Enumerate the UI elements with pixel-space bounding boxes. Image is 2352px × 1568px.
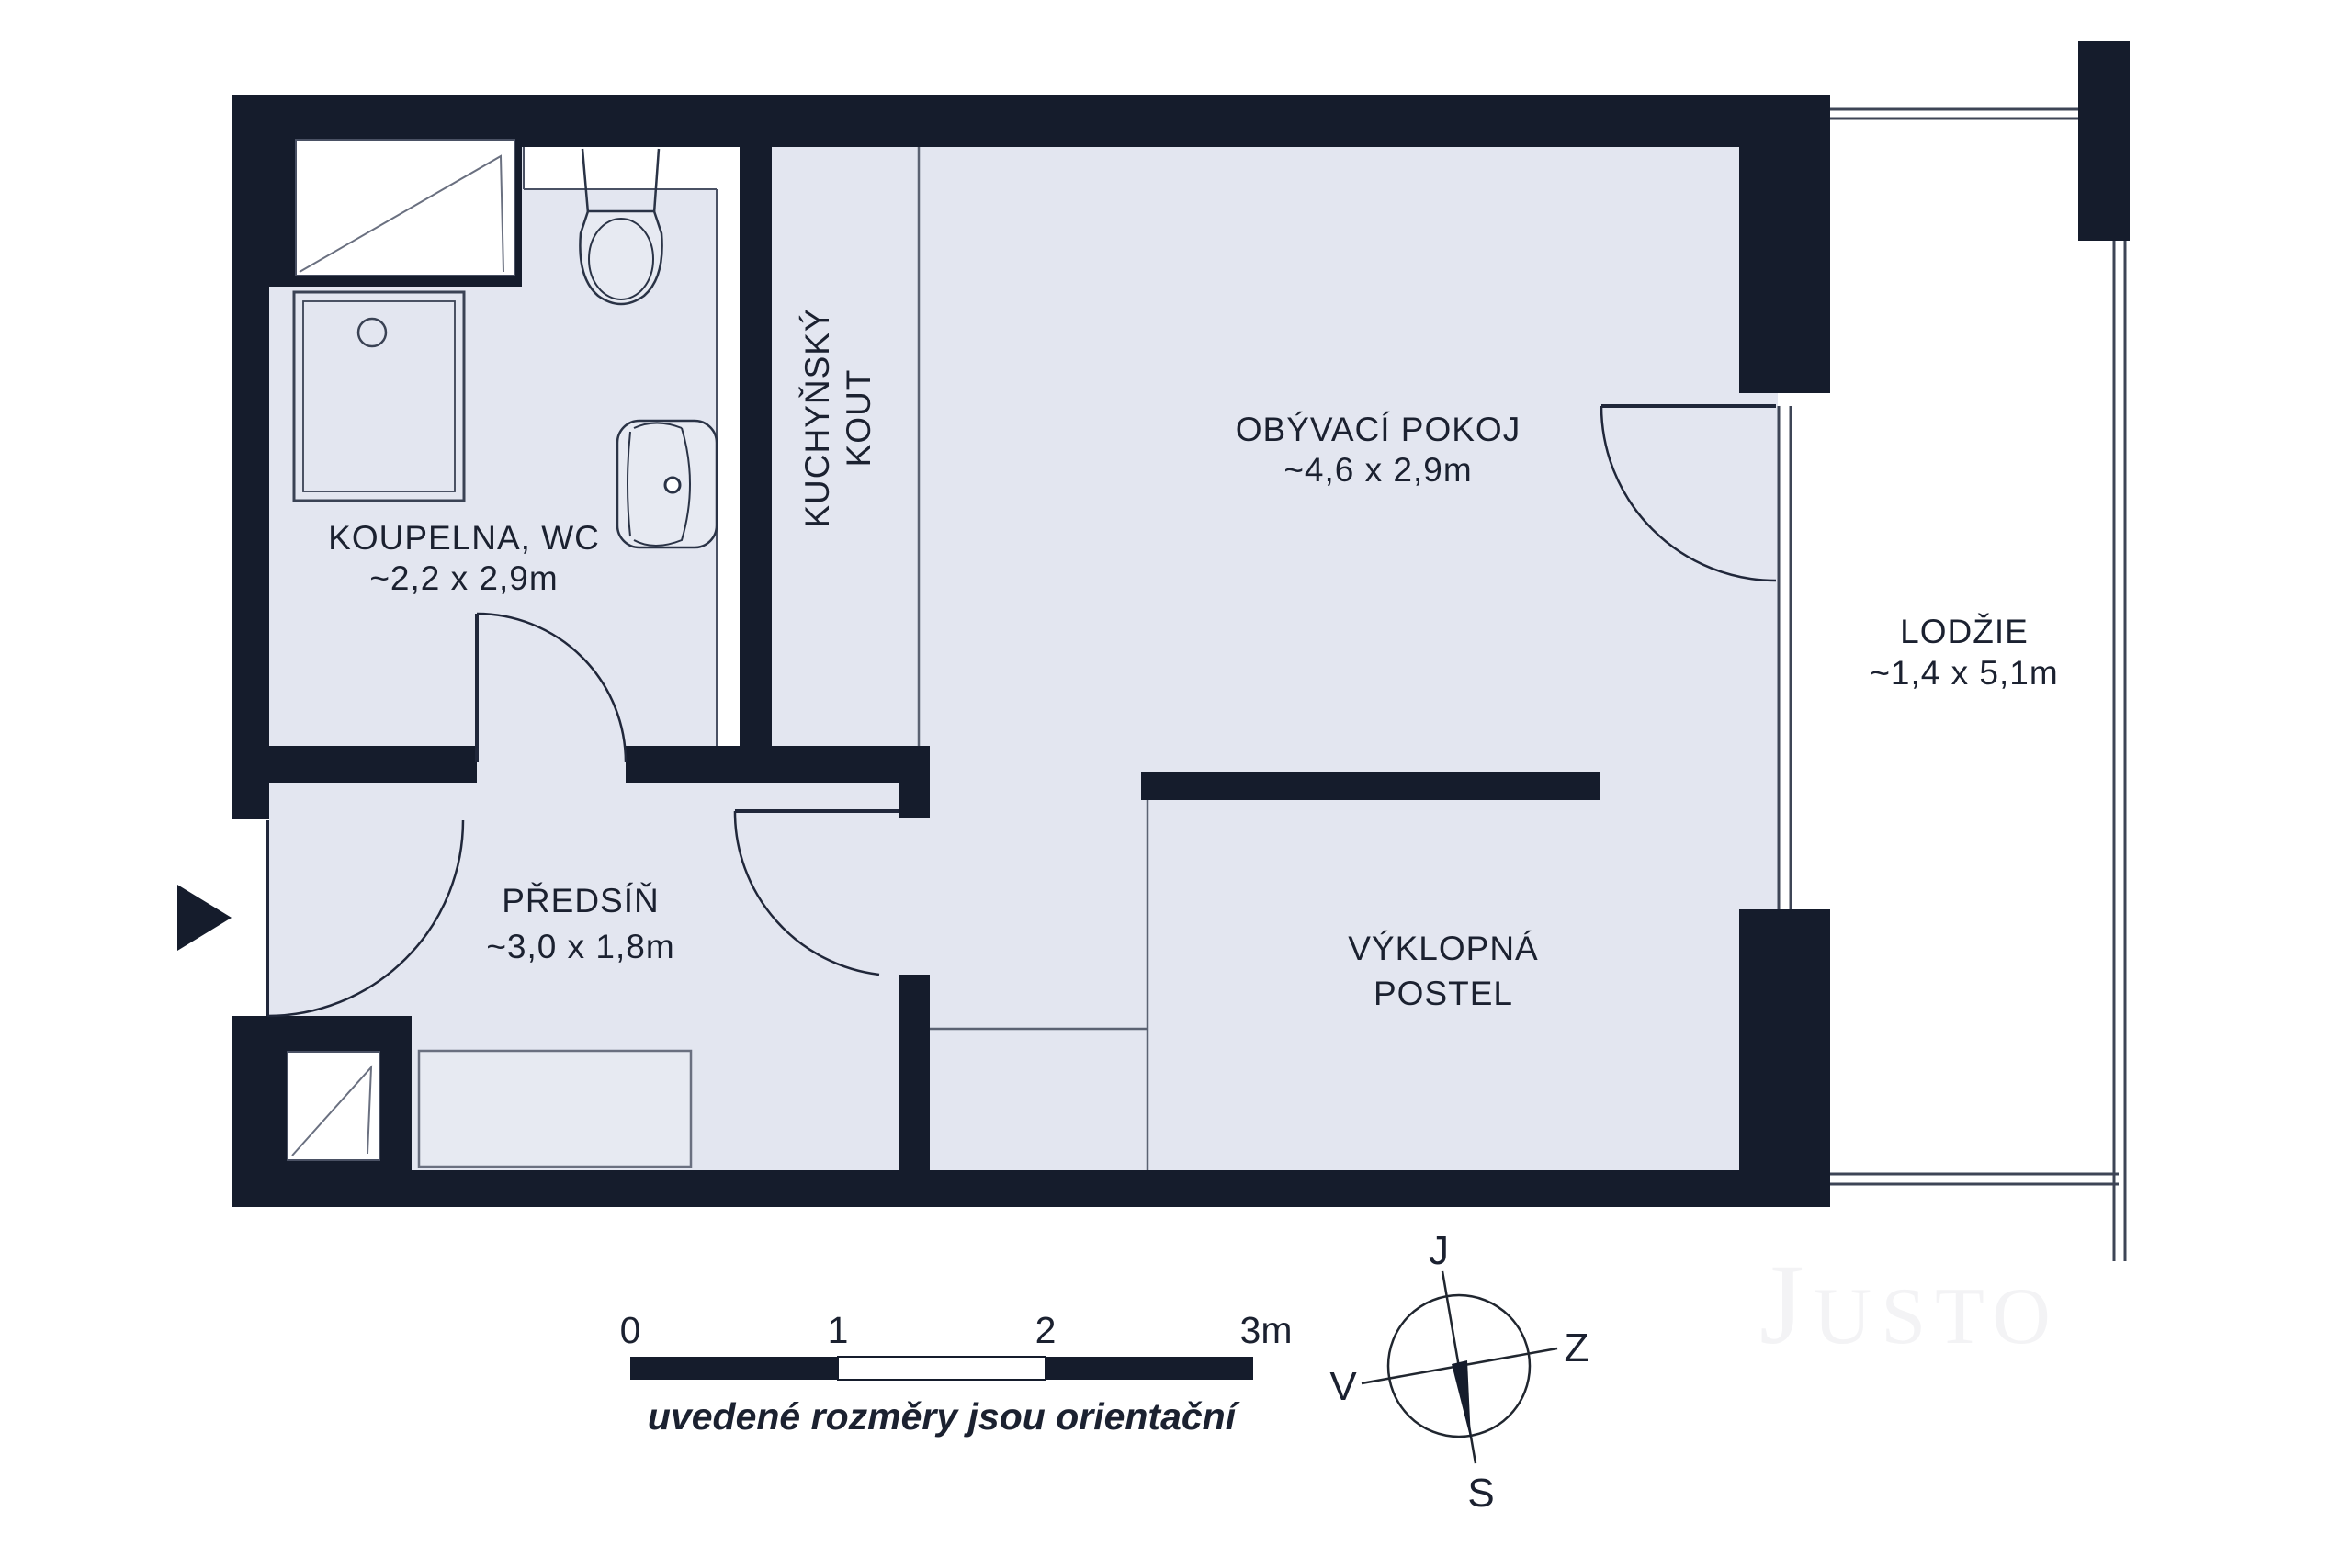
- label-lodzie-dims: ~1,4 x 5,1m: [1870, 654, 2058, 692]
- compass-letter-left: V: [1329, 1364, 1357, 1409]
- loggia-pillar: [2078, 41, 2130, 241]
- label-kout: KOUT: [840, 369, 877, 468]
- scale-label-0: 0: [620, 1309, 641, 1351]
- scale-seg-2: [838, 1357, 1046, 1380]
- scale-label-3: 3m: [1240, 1309, 1293, 1351]
- label-postel: POSTEL: [1374, 975, 1513, 1012]
- wall-block-bottomright: [1739, 909, 1830, 1207]
- wall-bathroom-right: [740, 147, 772, 783]
- scale-label-2: 2: [1035, 1309, 1057, 1351]
- scale-bar: 0 1 2 3m uvedené rozměry jsou orientační: [620, 1309, 1293, 1438]
- scale-caption: uvedené rozměry jsou orientační: [648, 1395, 1240, 1438]
- floor-plan-svg: Justo: [0, 0, 2352, 1568]
- scale-labels: 0 1 2 3m: [620, 1309, 1293, 1351]
- compass-letter-top: J: [1429, 1228, 1449, 1273]
- scale-seg-3: [1046, 1357, 1253, 1380]
- apartment-floor: [269, 147, 1778, 1170]
- label-obyvaci-dims: ~4,6 x 2,9m: [1283, 451, 1472, 489]
- hall-wardrobe: [419, 1051, 691, 1167]
- label-kuchynsky: KUCHYŇSKÝ: [798, 308, 836, 527]
- duct-shaft: [717, 147, 740, 746]
- shower-tray-icon: [294, 292, 464, 501]
- scale-label-1: 1: [828, 1309, 849, 1351]
- label-predsin: PŘEDSÍŇ: [502, 882, 659, 919]
- compass-letter-right: Z: [1565, 1325, 1589, 1371]
- watermark-text: Justo: [1759, 1242, 2060, 1369]
- window-bottom-icon: [288, 1052, 379, 1160]
- compass: J Z S V: [1329, 1228, 1589, 1516]
- wc-niche: [524, 147, 740, 189]
- label-obyvaci: OBÝVACÍ POKOJ: [1236, 411, 1521, 448]
- window-top-icon: [296, 140, 514, 276]
- label-lodzie: LODŽIE: [1900, 613, 2029, 650]
- sink-icon: [617, 421, 717, 547]
- wall-kitchen-south: [626, 746, 930, 783]
- scale-seg-1: [630, 1357, 838, 1380]
- wall-bathroom-south-left: [232, 746, 477, 783]
- floor-plan-page: Justo: [0, 0, 2352, 1568]
- wall-hall-living: [899, 975, 930, 1170]
- label-vyklopna: VÝKLOPNÁ: [1348, 930, 1538, 967]
- label-predsin-dims: ~3,0 x 1,8m: [486, 928, 674, 965]
- wall-bottom: [232, 1170, 1830, 1207]
- wall-door-jamb: [899, 781, 930, 818]
- entrance-arrow-icon: [177, 885, 232, 951]
- wall-block-topright: [1739, 95, 1830, 393]
- label-koupelna: KOUPELNA, WC: [328, 519, 600, 557]
- compass-letter-bottom: S: [1467, 1471, 1494, 1516]
- label-koupelna-dims: ~2,2 x 2,9m: [369, 559, 558, 597]
- compass-needle-icon: [1452, 1360, 1471, 1440]
- wall-bed-closet: [1141, 772, 1600, 800]
